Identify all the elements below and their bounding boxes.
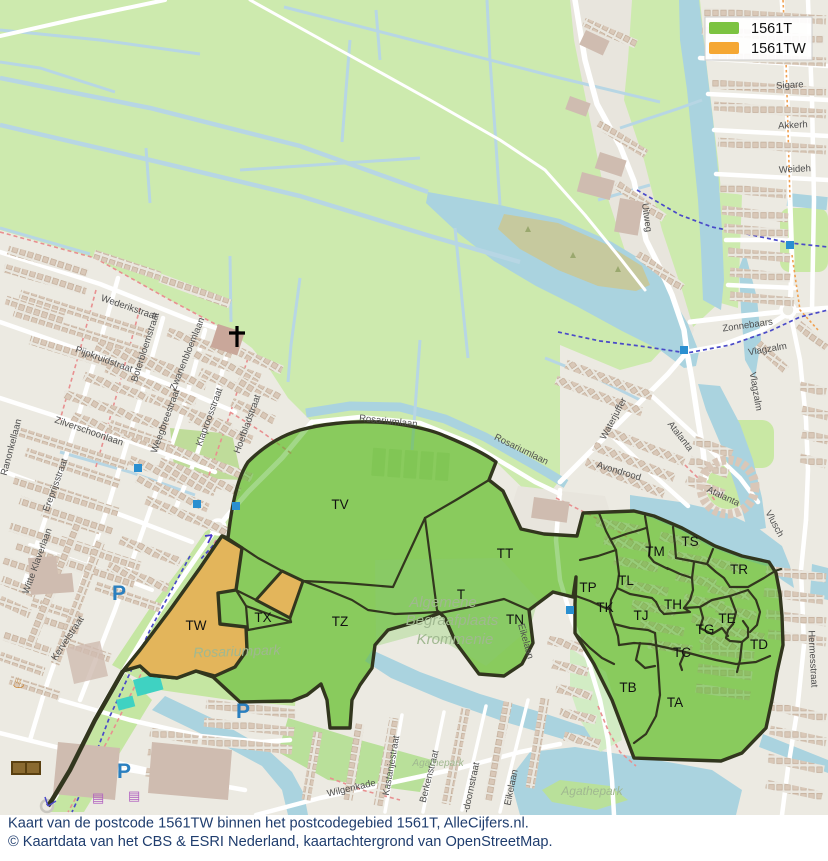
- svg-text:TR: TR: [730, 562, 748, 577]
- svg-text:Agathepark: Agathepark: [560, 784, 623, 798]
- svg-text:Akkerh: Akkerh: [778, 119, 808, 132]
- svg-text:Weideh: Weideh: [779, 163, 812, 176]
- svg-text:P: P: [112, 582, 126, 605]
- svg-text:TV: TV: [331, 497, 348, 512]
- svg-text:Begraafplaats: Begraafplaats: [406, 612, 499, 629]
- svg-text:Krommenie: Krommenie: [417, 631, 494, 648]
- svg-text:TE: TE: [718, 611, 735, 626]
- svg-text:TX: TX: [254, 610, 271, 625]
- svg-text:TM: TM: [645, 544, 665, 559]
- svg-text:Rosariumpark: Rosariumpark: [193, 641, 282, 660]
- svg-text:TT: TT: [497, 546, 514, 561]
- svg-text:▤: ▤: [92, 790, 104, 805]
- svg-text:TH: TH: [664, 597, 682, 612]
- svg-text:Sigare: Sigare: [776, 79, 804, 91]
- svg-text:TZ: TZ: [332, 614, 349, 629]
- svg-text:TA: TA: [667, 695, 683, 710]
- svg-text:TS: TS: [681, 534, 698, 549]
- svg-text:TG: TG: [696, 622, 715, 637]
- svg-text:TW: TW: [186, 618, 207, 633]
- svg-text:TP: TP: [579, 580, 596, 595]
- svg-text:TK: TK: [596, 600, 613, 615]
- svg-text:P: P: [236, 700, 250, 723]
- svg-text:♨: ♨: [12, 675, 25, 692]
- svg-text:Kaart van de postcode 1561TW b: Kaart van de postcode 1561TW binnen het …: [8, 816, 529, 832]
- svg-text:Algemene: Algemene: [408, 594, 477, 611]
- svg-text:1561TW: 1561TW: [751, 41, 806, 57]
- svg-text:© Kaartdata van het CBS & ESRI: © Kaartdata van het CBS & ESRI Nederland…: [8, 834, 553, 850]
- svg-text:TL: TL: [618, 573, 634, 588]
- svg-text:▤: ▤: [128, 788, 140, 803]
- svg-text:TJ: TJ: [634, 608, 649, 623]
- svg-text:1561T: 1561T: [751, 21, 792, 37]
- svg-text:TC: TC: [673, 645, 691, 660]
- svg-text:P: P: [117, 760, 131, 783]
- svg-text:TB: TB: [619, 680, 636, 695]
- svg-text:TD: TD: [750, 637, 768, 652]
- svg-text:Agathepark: Agathepark: [411, 758, 464, 769]
